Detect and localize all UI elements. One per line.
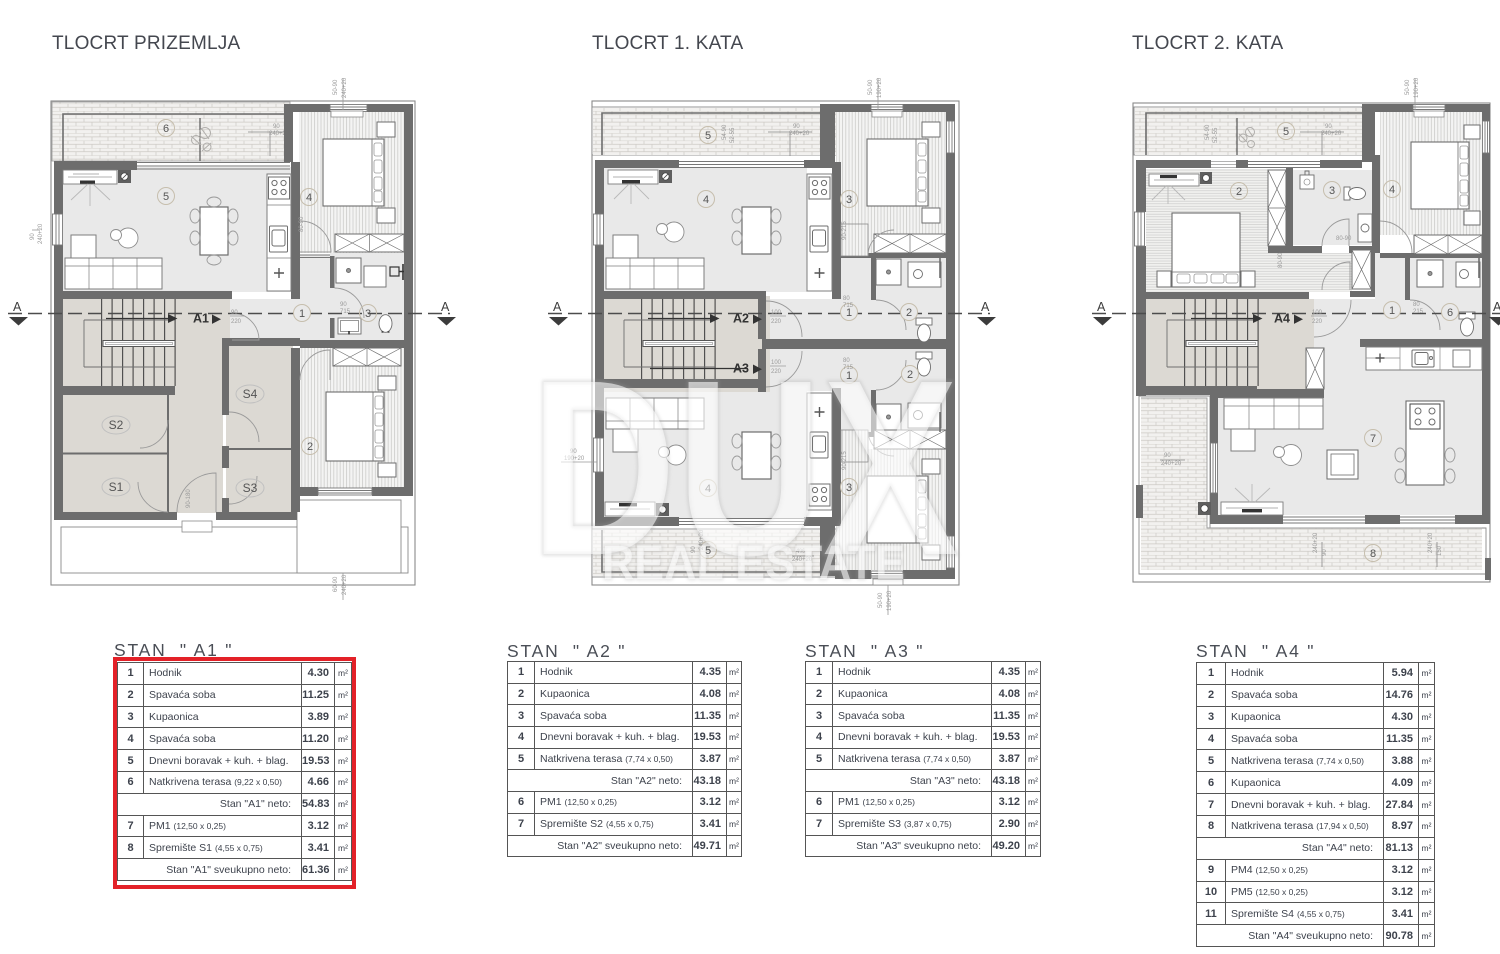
svg-text:2: 2: [1236, 186, 1242, 198]
svg-text:4: 4: [703, 194, 709, 206]
svg-text:90: 90: [340, 302, 347, 308]
svg-text:REAL ESTATE: REAL ESTATE: [602, 537, 905, 590]
svg-text:90: 90: [1164, 453, 1171, 459]
svg-text:2: 2: [906, 307, 912, 319]
svg-text:715: 715: [340, 309, 351, 315]
svg-text:90: 90: [793, 124, 800, 130]
svg-text:215: 215: [1413, 309, 1424, 315]
svg-text:190+20: 190+20: [1414, 77, 1420, 98]
svg-text:100: 100: [771, 310, 782, 316]
svg-text:A4: A4: [1274, 312, 1290, 326]
svg-text:240+20: 240+20: [789, 131, 810, 137]
svg-text:240+20: 240+20: [38, 223, 44, 244]
svg-text:80-90: 80-90: [1336, 236, 1352, 242]
svg-text:220: 220: [1312, 319, 1323, 325]
svg-text:90: 90: [1325, 124, 1332, 130]
svg-text:90: 90: [30, 233, 36, 240]
svg-text:A: A: [1097, 300, 1106, 314]
svg-text:S3: S3: [243, 481, 258, 495]
svg-text:90-215: 90-215: [842, 221, 848, 240]
svg-text:80-90: 80-90: [299, 216, 305, 232]
svg-text:80: 80: [843, 296, 850, 302]
svg-text:240+20: 240+20: [342, 574, 348, 595]
svg-text:4: 4: [306, 192, 312, 204]
svg-text:240+20: 240+20: [1321, 131, 1342, 137]
svg-text:3: 3: [1329, 185, 1335, 197]
svg-text:54-90: 54-90: [722, 124, 728, 140]
svg-text:6: 6: [163, 123, 169, 135]
svg-text:S4: S4: [243, 387, 258, 401]
svg-text:A: A: [981, 300, 990, 314]
svg-text:220: 220: [771, 319, 782, 325]
svg-text:S1: S1: [109, 480, 124, 494]
svg-text:50-90: 50-90: [868, 79, 874, 95]
svg-text:240+20: 240+20: [1428, 532, 1434, 553]
svg-text:8: 8: [1370, 548, 1376, 560]
svg-text:50-90: 50-90: [1405, 79, 1411, 95]
svg-text:60-90: 60-90: [333, 576, 339, 592]
svg-text:80: 80: [1413, 302, 1420, 308]
svg-text:6: 6: [1447, 307, 1453, 319]
svg-text:90: 90: [231, 310, 238, 316]
svg-text:240+20: 240+20: [342, 77, 348, 98]
svg-text:5: 5: [163, 191, 169, 203]
svg-text:54-90: 54-90: [1205, 124, 1211, 140]
svg-text:715: 715: [843, 303, 854, 309]
svg-text:5: 5: [1283, 126, 1289, 138]
svg-text:90: 90: [273, 124, 280, 130]
svg-text:90: 90: [1322, 549, 1328, 556]
svg-text:A: A: [1493, 300, 1500, 314]
svg-text:4: 4: [1389, 184, 1395, 196]
svg-text:A: A: [13, 300, 22, 314]
svg-text:220: 220: [231, 319, 242, 325]
svg-text:190+20: 190+20: [877, 77, 883, 98]
svg-text:52-55: 52-55: [1213, 127, 1219, 143]
svg-text:A1: A1: [193, 312, 209, 326]
svg-text:7: 7: [1370, 433, 1376, 445]
svg-text:2: 2: [307, 441, 313, 453]
svg-text:3: 3: [846, 194, 852, 206]
svg-text:50-90: 50-90: [333, 79, 339, 95]
svg-text:A: A: [441, 300, 450, 314]
svg-text:90-180: 90-180: [186, 489, 192, 508]
svg-text:5: 5: [705, 130, 711, 142]
svg-text:80-90: 80-90: [1278, 252, 1284, 268]
svg-text:240+20: 240+20: [1161, 461, 1182, 467]
svg-text:52-55: 52-55: [730, 127, 736, 143]
svg-text:1: 1: [1389, 305, 1395, 317]
svg-text:1: 1: [299, 308, 305, 320]
svg-text:240+20: 240+20: [1313, 532, 1319, 553]
svg-text:A2: A2: [733, 312, 749, 326]
svg-text:A: A: [553, 300, 562, 314]
svg-text:3: 3: [365, 308, 371, 320]
svg-text:150: 150: [1437, 545, 1443, 556]
svg-text:S2: S2: [109, 418, 124, 432]
svg-text:100: 100: [1312, 310, 1323, 316]
